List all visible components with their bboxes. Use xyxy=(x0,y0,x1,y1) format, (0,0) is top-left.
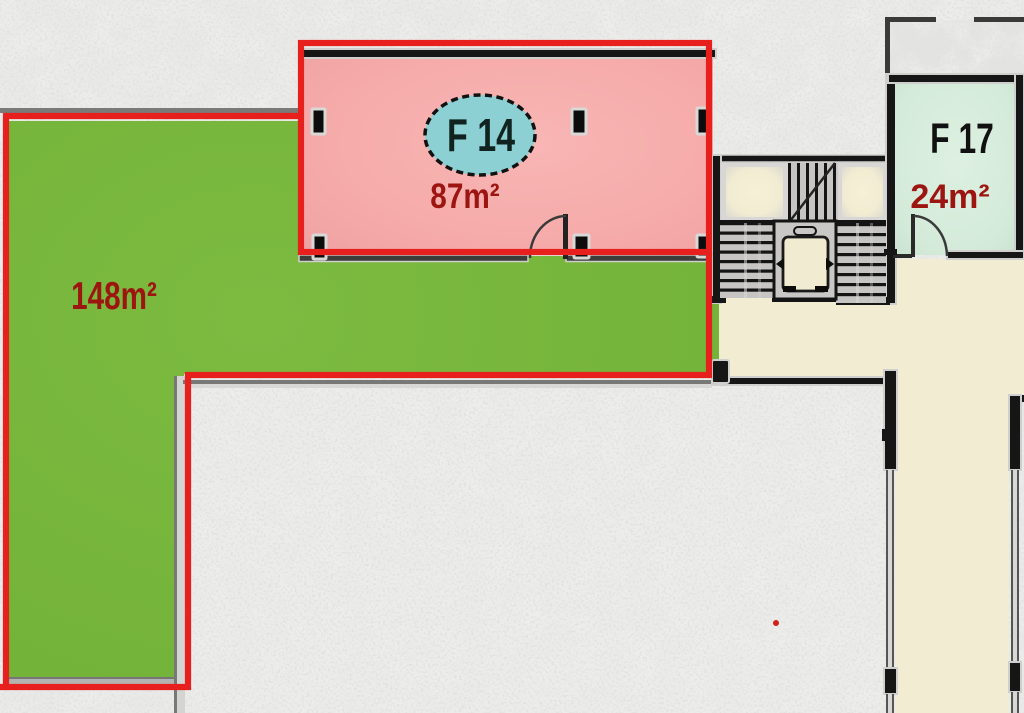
svg-text:F 14: F 14 xyxy=(447,109,516,161)
svg-text:24m²: 24m² xyxy=(910,178,989,216)
svg-text:F 17: F 17 xyxy=(930,115,994,163)
svg-text:148m²: 148m² xyxy=(71,275,157,318)
svg-text:87m²: 87m² xyxy=(430,177,500,216)
